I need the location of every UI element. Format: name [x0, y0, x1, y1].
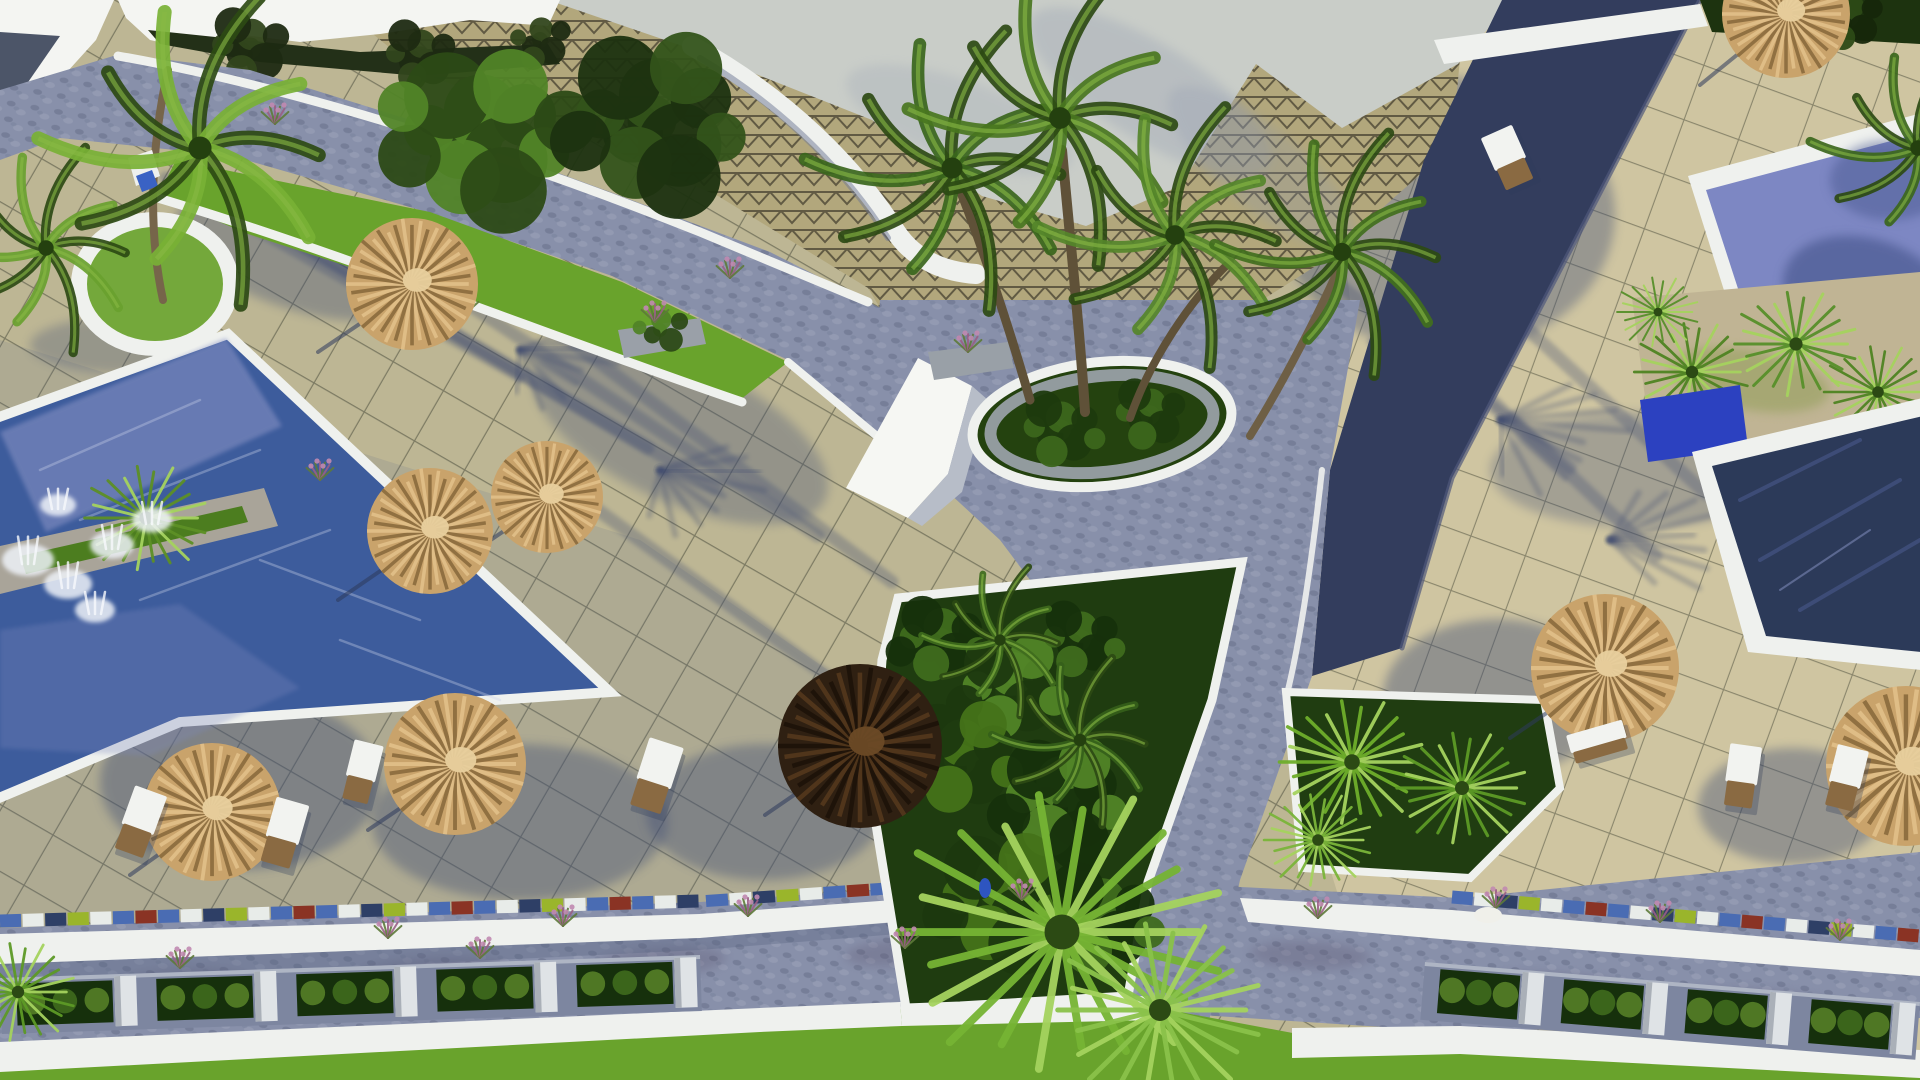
thatch-umbrella	[491, 441, 603, 553]
small-white-figure	[1474, 907, 1502, 923]
thatch-umbrella	[384, 693, 526, 835]
dark-umbrella	[778, 664, 942, 828]
thatch-umbrella	[346, 218, 478, 350]
aerial-resort-render	[0, 0, 1920, 1080]
scene-canvas	[0, 0, 1920, 1080]
thatch-umbrella	[367, 468, 493, 594]
scene-root	[0, 0, 1920, 1080]
tiny-figure	[979, 878, 991, 898]
thatch-umbrella	[1531, 594, 1679, 742]
